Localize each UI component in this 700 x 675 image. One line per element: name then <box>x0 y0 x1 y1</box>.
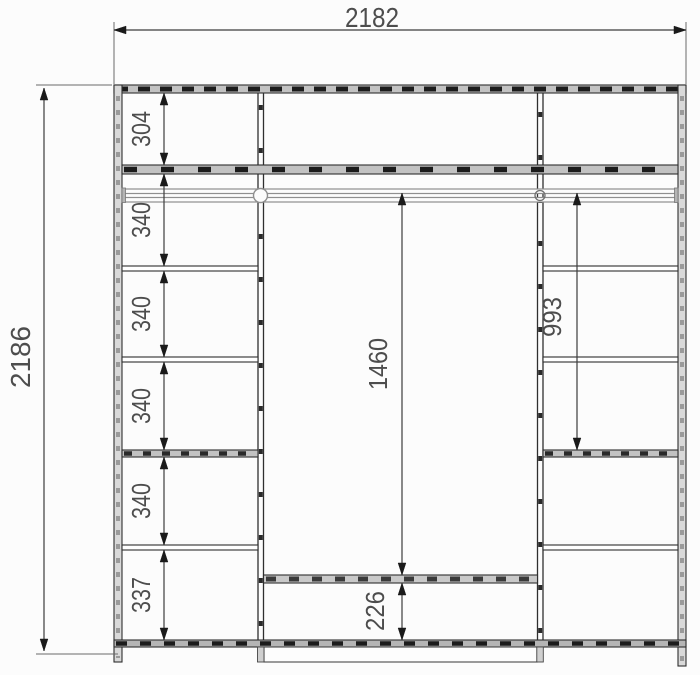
left-divider-foot <box>258 647 265 662</box>
right-shelf-1 <box>543 266 678 271</box>
left-divider-panel <box>258 93 264 647</box>
dim-label-left-340-4: 340 <box>126 483 156 519</box>
right-shelf-3-band <box>543 450 678 457</box>
dim-label-left-340-3: 340 <box>126 388 156 424</box>
right-side-panel-band <box>678 85 686 666</box>
dim-label-left-340-2: 340 <box>126 296 156 332</box>
right-shelf-4 <box>543 545 678 550</box>
dim-label-left-337: 337 <box>126 577 156 613</box>
right-shelf-2 <box>543 357 678 362</box>
plinth-face <box>264 647 537 662</box>
rod-bracket-left-divider <box>254 189 268 203</box>
dimension-overall-width: 2182 <box>114 2 686 84</box>
dimension-center-bottom: 226 <box>360 583 402 640</box>
left-shelf-1 <box>122 266 258 271</box>
right-shelf-3-hatched <box>543 450 678 457</box>
bottom-panel <box>114 640 686 647</box>
dimension-left-column: 304 340 340 340 340 337 <box>126 93 164 640</box>
hanging-rod-upper <box>122 189 678 194</box>
left-shelf-3-hatched <box>122 450 258 457</box>
right-side-panel <box>678 85 686 666</box>
top-panel <box>114 85 686 93</box>
technical-drawing: 2182 2186 304 340 340 340 340 337 1460 2… <box>0 0 700 675</box>
dim-label-left-340-1: 340 <box>126 202 156 238</box>
dim-label-overall-height: 2186 <box>5 326 36 388</box>
dim-label-center-1460: 1460 <box>363 338 393 390</box>
dimension-overall-height: 2186 <box>5 85 118 654</box>
left-side-panel <box>114 85 122 662</box>
dim-label-overall-width: 2182 <box>345 2 399 33</box>
rod-bracket-left-wall <box>122 188 126 203</box>
left-shelf-4 <box>122 545 258 550</box>
plinth <box>258 647 544 662</box>
left-shelf-2 <box>122 357 258 362</box>
hanging-rod-lower <box>122 198 678 203</box>
hanging-rod <box>122 188 678 203</box>
right-divider-foot <box>537 647 544 662</box>
rod-bracket-right-wall <box>675 188 679 203</box>
dim-label-right-993: 993 <box>537 297 567 337</box>
right-divider-panel <box>538 93 544 647</box>
dim-label-center-226: 226 <box>360 591 390 631</box>
left-shelf-3-band <box>122 450 258 457</box>
top-rail <box>122 165 678 174</box>
dim-label-left-304: 304 <box>126 111 156 147</box>
center-bottom-shelf <box>264 575 538 583</box>
cabinet-structure <box>114 85 686 666</box>
dimension-center-opening: 1460 <box>363 193 402 575</box>
